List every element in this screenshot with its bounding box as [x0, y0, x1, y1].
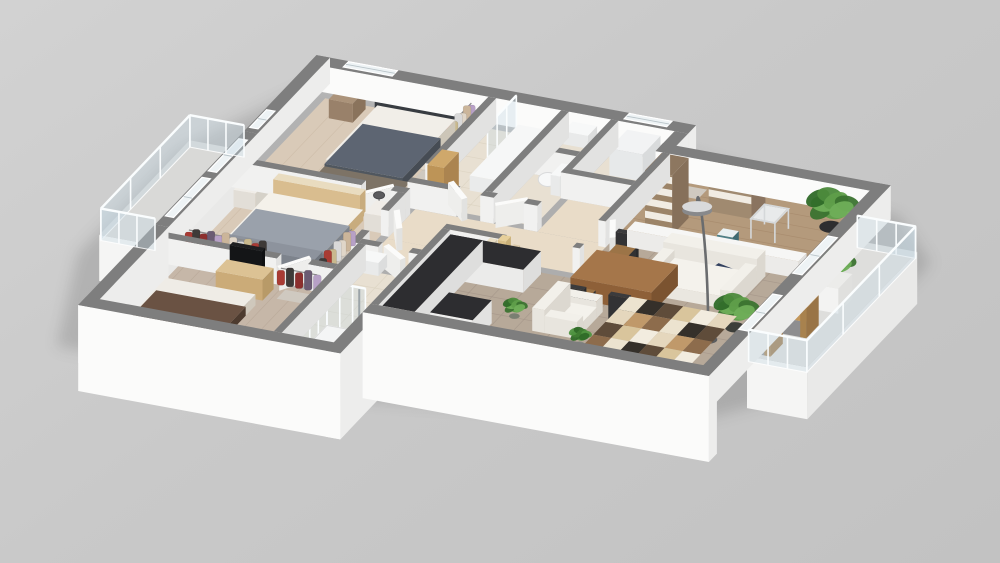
wall-b2-master-b-side-right — [406, 188, 411, 219]
wall-living-left-a-side-front — [598, 220, 605, 247]
bedroom-bottom-wardrobe-garment — [304, 270, 312, 290]
render-canvas — [0, 0, 1000, 563]
wall-mid-bottom-c-side-right — [537, 201, 541, 232]
arc-floor-lamp-shade — [682, 201, 712, 212]
wall-front-living-side-right — [709, 368, 717, 462]
master-lamp-right — [374, 192, 385, 199]
armchair-back-side-front — [532, 308, 545, 333]
wall-master-right-a-side-front — [381, 209, 389, 237]
door-bathroom-side-right — [462, 198, 468, 222]
dining-plant-pot — [509, 313, 520, 319]
toilet-tank-side-front — [551, 175, 560, 197]
wall-front-left-wing-side-right — [340, 345, 348, 439]
bedroom-bottom-wardrobe-garment — [286, 268, 294, 287]
door-master-bedroom-side-right — [396, 228, 402, 251]
bedroom-bottom-wardrobe-garment — [277, 270, 285, 285]
door-living-room-top — [610, 219, 616, 238]
floor-plan-3d-render — [0, 0, 1000, 563]
bedroom-bottom-wardrobe-garment — [295, 273, 303, 289]
wall-mid-bottom-c-side-front — [524, 203, 538, 232]
master-nightstand-right-side-front — [364, 213, 382, 233]
wall-mid-bottom-b-side-front — [480, 195, 494, 224]
